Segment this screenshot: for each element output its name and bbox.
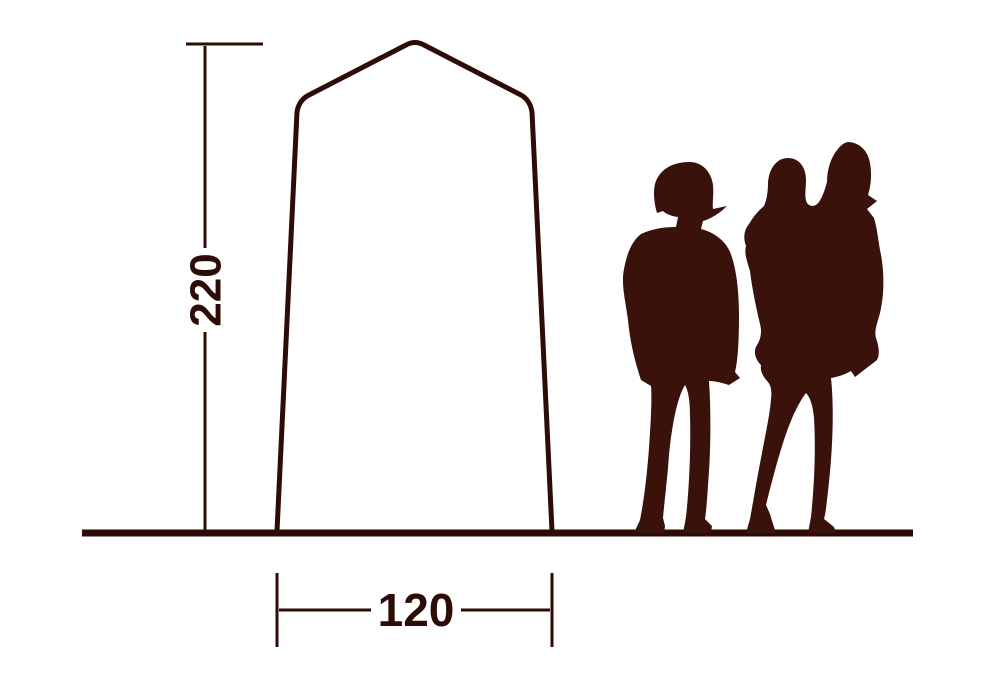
- height-dimension: 220: [181, 44, 263, 530]
- standing-adult-silhouette: [623, 162, 740, 533]
- height-dimension-label: 220: [181, 253, 230, 326]
- adult-carrying-child-silhouette: [744, 142, 883, 533]
- diagram-canvas: 220 120: [0, 0, 995, 682]
- tent-outline: [277, 43, 552, 532]
- tent-dimension-diagram: 220 120: [0, 0, 995, 682]
- width-dimension-label: 120: [378, 584, 455, 636]
- width-dimension: 120: [277, 573, 552, 647]
